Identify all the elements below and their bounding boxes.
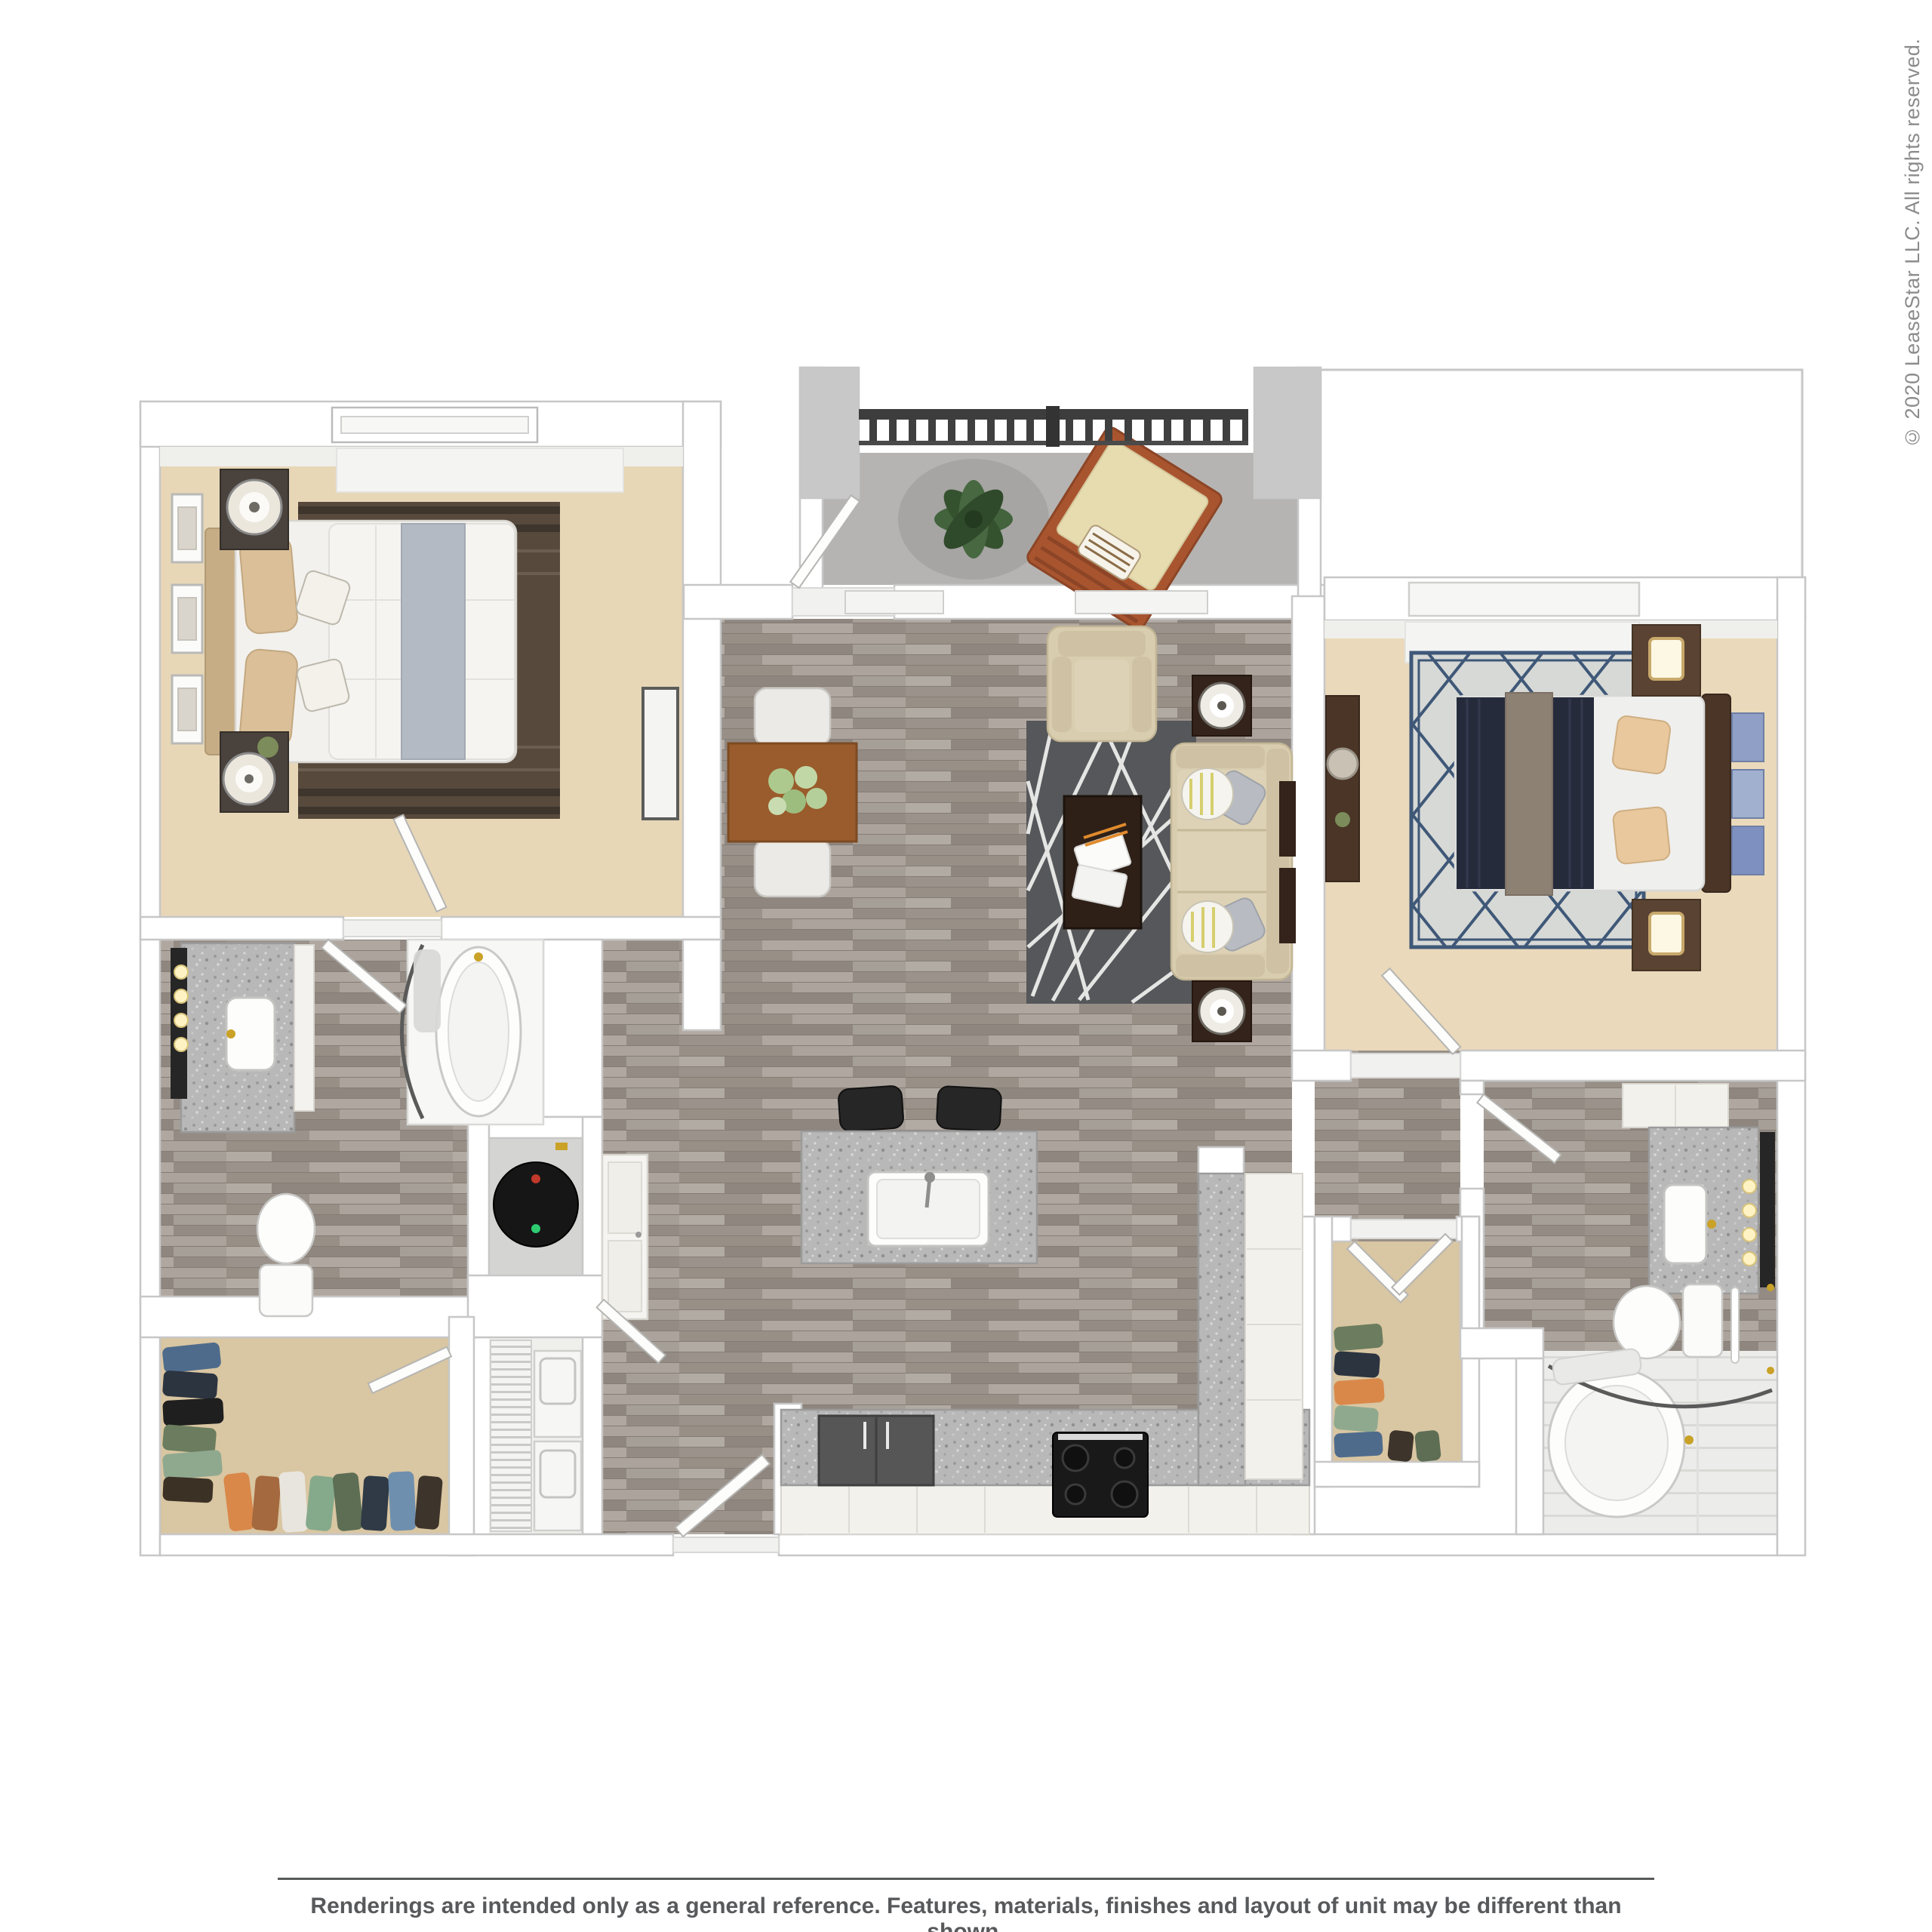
windows-on-walls: [332, 408, 537, 442]
bedroom2-headboard: [1702, 694, 1730, 892]
master-headboard: [205, 528, 235, 755]
wall-closet1-right: [449, 1317, 474, 1555]
wall-master-bottom-b: [441, 917, 721, 940]
sofa-arm-bottom: [1176, 955, 1265, 977]
master-vanity: [171, 943, 314, 1132]
toilet-bowl: [1614, 1286, 1680, 1358]
wall-bedroom2-bottom-b: [1460, 1051, 1805, 1081]
sofa-pillow-striped-2: [1182, 901, 1233, 952]
robe-hook-2: [1767, 1367, 1774, 1374]
master-window-sill: [341, 417, 528, 433]
wall-closet2-left: [1315, 1217, 1332, 1487]
wall-tub2-stub-h: [1460, 1328, 1543, 1358]
dining-chair-2: [755, 839, 830, 897]
bedroom2-pillow-2: [1613, 807, 1671, 865]
wall-bath1-bottom: [140, 1297, 489, 1337]
towel-bar: [1731, 1287, 1739, 1363]
balcony-pillar-left: [800, 368, 859, 498]
armchair: [1048, 626, 1156, 741]
master-accent-pillow-2: [296, 658, 351, 713]
lamp-square: [1650, 638, 1683, 679]
floor-plan-rendering: [0, 0, 1932, 1932]
cabinets-right-run: [1245, 1174, 1303, 1479]
wire-shelving: [491, 1340, 531, 1531]
potted-plant: [934, 480, 1013, 558]
bedroom2-nightstand-top: [1632, 625, 1700, 696]
robe-hook-1: [1767, 1284, 1774, 1291]
master-nightstand-top: [220, 469, 288, 549]
toilet-bowl: [257, 1194, 315, 1263]
range-stove: [1053, 1432, 1148, 1517]
heater-valve-red: [531, 1174, 540, 1183]
vanity-sink: [1664, 1185, 1706, 1263]
counter-right-run: [1198, 1174, 1245, 1485]
wall-counter-cap: [1198, 1147, 1244, 1176]
bedroom2-window: [1409, 583, 1639, 616]
balcony-railing: [859, 406, 1248, 447]
bedroom2-artwork: [1732, 713, 1764, 875]
wall-master-bottom-a: [140, 917, 343, 940]
heater-valve-green: [531, 1224, 540, 1233]
bedroom2-door-threshold: [1351, 1054, 1460, 1078]
end-table-top: [1192, 675, 1251, 736]
shower-curtain: [414, 949, 441, 1032]
wall-bedroom2-bottom-a: [1292, 1051, 1351, 1081]
bath2-vanity: [1649, 1128, 1775, 1294]
dining-chair-1: [755, 688, 830, 746]
toilet-tank: [260, 1265, 312, 1316]
linen-cabinet: [602, 1155, 648, 1319]
dresser-plant: [1335, 812, 1350, 827]
closet2-door-threshold: [1351, 1220, 1457, 1238]
stove-handle: [1058, 1434, 1143, 1440]
bedroom2-nightstand-bottom: [1632, 900, 1700, 971]
wall-left-outer: [140, 401, 160, 1555]
wall-laundry-top: [468, 1275, 602, 1337]
end-table-bottom: [1192, 981, 1251, 1041]
wall-bath2-left-a: [1460, 1081, 1484, 1094]
lamp-square: [1650, 913, 1683, 954]
master-nightstand-bottom: [220, 732, 288, 812]
heater-pipe: [555, 1143, 568, 1150]
toilet-2: [1614, 1284, 1722, 1358]
dresser-mirror: [1327, 749, 1358, 779]
wall-living-right-upper: [1292, 596, 1324, 1063]
coffee-table: [1064, 796, 1141, 928]
bar-stool-1: [838, 1085, 904, 1132]
wall-frames: [172, 494, 202, 743]
master-wall-panel: [643, 688, 678, 819]
footer: Renderings are intended only as a genera…: [278, 1878, 1654, 1932]
bar-stool-2: [937, 1086, 1002, 1131]
roof-outline: [1321, 370, 1802, 577]
wall-shelf-1: [1279, 781, 1296, 857]
bedroom2-bed: [1455, 693, 1730, 895]
bed-runner-taupe: [1506, 693, 1552, 895]
wall-bottom-b: [779, 1534, 1777, 1555]
wall-tub2-stub-v: [1516, 1358, 1543, 1534]
wall-water-heater-left: [468, 1117, 489, 1297]
bedroom2-pillow-1: [1611, 715, 1671, 774]
wall-closet2-bottom: [1315, 1462, 1479, 1487]
master-bath-door-threshold: [343, 920, 441, 937]
base-cabinets-bottom: [781, 1485, 1309, 1534]
vanity-cabinet: [294, 945, 314, 1111]
living-window-2: [1075, 591, 1207, 614]
floor-plan-page: © 2020 LeaseStar LLC. All rights reserve…: [0, 0, 1932, 1932]
wall-living-top-a: [684, 585, 792, 619]
bedroom2-dresser: [1326, 696, 1359, 881]
armchair-back: [1058, 631, 1146, 657]
disclaimer-text: Renderings are intended only as a genera…: [278, 1894, 1654, 1932]
wall-bottom-a: [160, 1534, 673, 1555]
balcony-pillar-right: [1254, 368, 1321, 498]
railing-post: [1046, 406, 1060, 447]
sofa-pillow-striped-1: [1182, 768, 1233, 820]
master-tub: [402, 940, 544, 1124]
wall-master-right: [683, 401, 721, 940]
tub2-faucet-gold: [1684, 1435, 1694, 1444]
living-window-1: [845, 591, 943, 614]
wall-bath1-right: [543, 940, 602, 1117]
copyright-watermark: © 2020 LeaseStar LLC. All rights reserve…: [1901, 26, 1924, 448]
plant-small: [257, 737, 278, 758]
vanity-mirror: [1760, 1132, 1775, 1287]
sofa-arm-top: [1176, 746, 1265, 768]
tub-faucet-gold: [474, 952, 483, 961]
master-window-soffit: [337, 448, 623, 492]
master-bed-runner: [401, 524, 465, 759]
faucet-gold: [1707, 1220, 1716, 1229]
front-door-threshold: [673, 1537, 779, 1552]
wall-hall-living: [683, 940, 721, 1030]
wall-shelf-2: [1279, 868, 1296, 943]
faucet-gold: [226, 1029, 235, 1038]
toilet-tank: [1683, 1284, 1722, 1357]
sofa: [1171, 743, 1292, 980]
